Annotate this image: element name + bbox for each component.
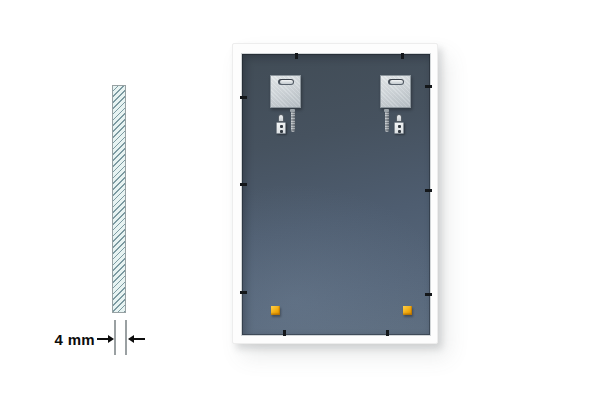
- hanger-plate-right: [380, 75, 411, 108]
- dimension-arrow-right-icon: [97, 338, 108, 340]
- retainer-tab: [425, 85, 432, 88]
- back-panel: [242, 54, 430, 335]
- hanger-plate-left: [270, 75, 301, 108]
- hanger-slot-icon: [388, 79, 404, 85]
- hanger-slot-highlight: [390, 80, 403, 84]
- screw-left: [291, 110, 295, 132]
- retainer-tab: [425, 293, 432, 296]
- hook-knob: [396, 114, 402, 122]
- hook-body: [394, 122, 404, 134]
- corner-bumper-left: [271, 306, 280, 315]
- hook-knob: [278, 114, 284, 122]
- retainer-tab: [283, 330, 286, 336]
- dimension-extension-line-right: [125, 320, 127, 355]
- hook-hole: [398, 125, 401, 128]
- thickness-label: 4 mm: [38, 331, 95, 348]
- hanging-hook-right: [394, 114, 404, 134]
- retainer-tab: [240, 183, 247, 186]
- dimension-arrow-left-icon: [134, 338, 145, 340]
- glass-cross-section: [112, 85, 126, 313]
- hanger-slot-highlight: [280, 80, 293, 84]
- dimension-extension-line-left: [114, 320, 116, 355]
- retainer-tab: [240, 291, 247, 294]
- hook-hole: [280, 125, 283, 128]
- hook-hole: [398, 130, 401, 133]
- corner-bumper-right: [403, 306, 412, 315]
- hook-body: [276, 122, 286, 134]
- hook-hole: [280, 130, 283, 133]
- hanging-hook-left: [276, 114, 286, 134]
- product-image: 4 mm: [0, 0, 600, 400]
- screw-right: [385, 110, 389, 132]
- retainer-tab: [401, 53, 404, 59]
- hanger-slot-icon: [278, 79, 294, 85]
- retainer-tab: [295, 53, 298, 59]
- retainer-tab: [386, 330, 389, 336]
- mirror-frame-back: [232, 43, 438, 344]
- retainer-tab: [240, 96, 247, 99]
- retainer-tab: [425, 189, 432, 192]
